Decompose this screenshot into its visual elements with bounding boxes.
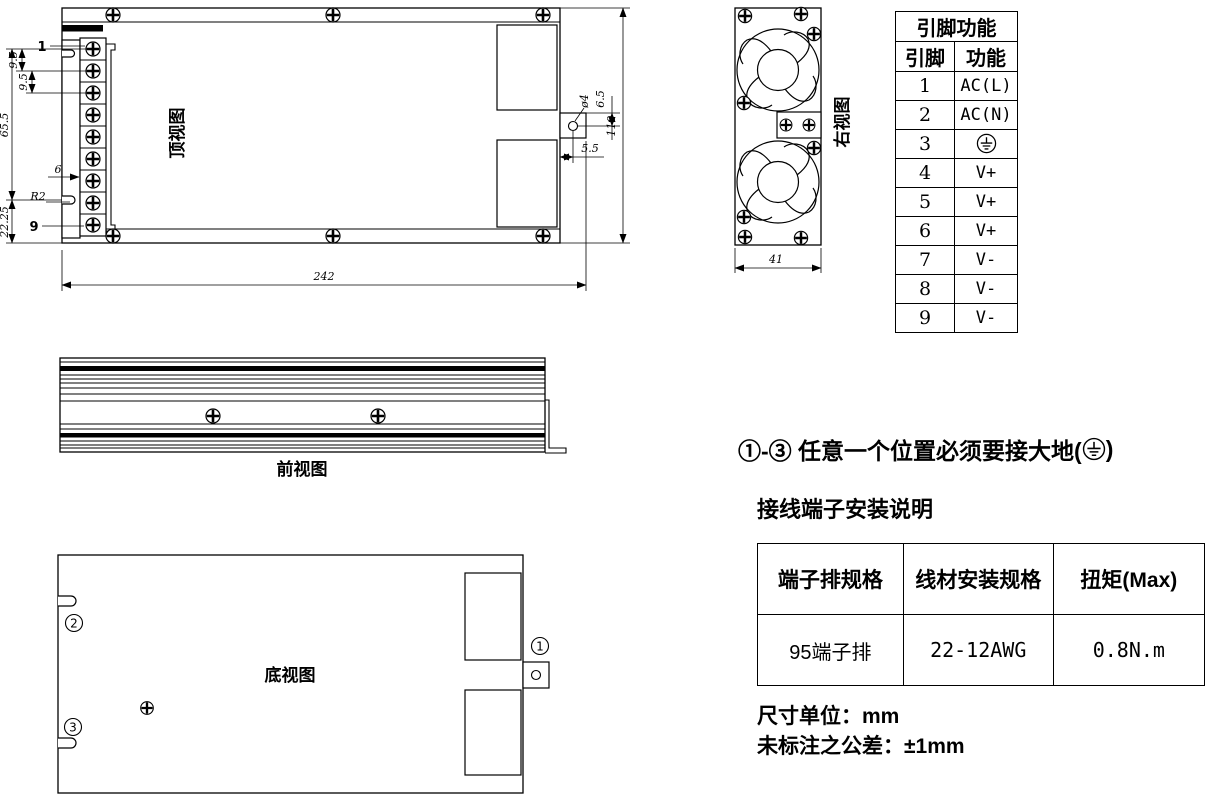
terminal-header-row: 端子排规格 线材安装规格 扭矩(Max) — [758, 544, 1205, 615]
tolerance-note: 未标注之公差：±1mm — [757, 732, 965, 762]
ground-note-suffix: ) — [1106, 436, 1114, 463]
marker-1: 1 — [536, 640, 544, 654]
pin-number: 9 — [896, 304, 955, 333]
earth-ground-icon — [976, 133, 997, 154]
pin-function: AC(N) — [955, 101, 1018, 130]
dim-hole-dia: ø4 — [578, 94, 591, 109]
front-view-body — [60, 358, 566, 453]
dim-length-242: 242 — [313, 270, 335, 283]
pin-last-label: 9 — [29, 220, 38, 235]
engineering-drawing-page: 1 9 9.5 9.5 65.5 22.25 6 R2 ø4 6.5 — [0, 0, 1205, 801]
front-screw — [206, 409, 220, 423]
pin-row: 6 V+ — [896, 217, 1018, 246]
right-view-drawing: 41 右视图 — [700, 0, 880, 290]
marker-2: 2 — [70, 617, 78, 631]
pin-function-table: 引脚功能 引脚 功能 1 AC(L) 2 AC(N) 3 4 V+ 5 V+ 6… — [895, 11, 1018, 333]
pin-row: 1 AC(L) — [896, 72, 1018, 101]
dim-pitch-a: 9.5 — [7, 51, 20, 69]
pin-function — [955, 130, 1018, 159]
top-view-label: 顶视图 — [167, 108, 187, 159]
pin-first-label: 1 — [37, 40, 46, 55]
pin-table-title: 引脚功能 — [896, 12, 1018, 42]
dim-corner-radius: R2 — [29, 190, 45, 203]
right-view-label: 右视图 — [832, 97, 852, 148]
pin-row: 4 V+ — [896, 159, 1018, 188]
function-column-header: 功能 — [955, 42, 1018, 72]
pin-row: 2 AC(N) — [896, 101, 1018, 130]
pin-number: 3 — [896, 130, 955, 159]
pin-function: V+ — [955, 217, 1018, 246]
units-note: 尺寸单位：mm — [757, 702, 965, 732]
dim-width-41: 41 — [768, 253, 783, 266]
dim-pitch-b: 9.5 — [17, 73, 30, 91]
fan-bottom-icon — [737, 141, 819, 223]
right-view-connector-box — [777, 112, 821, 138]
pin-function: V- — [955, 246, 1018, 275]
pin-row: 7 V- — [896, 246, 1018, 275]
pin-function: V- — [955, 275, 1018, 304]
front-screw — [371, 409, 385, 423]
wire-spec-value: 22-12AWG — [903, 615, 1053, 686]
ground-note-text: ①-③ 任意一个位置必须要接大地( — [738, 432, 1082, 466]
front-view-label: 前视图 — [277, 459, 328, 479]
pin-row: 8 V- — [896, 275, 1018, 304]
pin-row: 3 — [896, 130, 1018, 159]
pin-column-header: 引脚 — [896, 42, 955, 72]
torque-value: 0.8N.m — [1053, 615, 1204, 686]
dim-flange-width: 6 — [55, 163, 62, 176]
terminal-data-row: 95端子排 22-12AWG 0.8N.m — [758, 615, 1205, 686]
pin-function: V+ — [955, 188, 1018, 217]
dim-width-110: 110 — [605, 116, 618, 137]
bottom-view-tab — [523, 662, 549, 688]
pin-number: 2 — [896, 101, 955, 130]
front-view-drawing: 前视图 — [40, 350, 600, 490]
terminal-col-wire: 线材安装规格 — [903, 544, 1053, 615]
pin-function: V+ — [955, 159, 1018, 188]
front-view-bracket — [545, 400, 566, 453]
terminal-col-torque: 扭矩(Max) — [1053, 544, 1204, 615]
top-view-enclosure — [62, 8, 560, 243]
bottom-screw — [141, 702, 154, 715]
dim-hole-side-offset: 5.5 — [581, 142, 599, 155]
terminal-spec-table: 端子排规格 线材安装规格 扭矩(Max) 95端子排 22-12AWG 0.8N… — [757, 543, 1205, 686]
pin-row: 5 V+ — [896, 188, 1018, 217]
dim-bottom-offset: 22.25 — [0, 206, 11, 239]
marker-3: 3 — [69, 721, 77, 735]
pin-number: 8 — [896, 275, 955, 304]
dim-terminal-height: 65.5 — [0, 113, 11, 138]
bottom-view-label: 底视图 — [265, 665, 316, 685]
terminal-col-spec: 端子排规格 — [758, 544, 904, 615]
terminal-install-heading: 接线端子安装说明 — [757, 492, 933, 524]
ground-connection-note: ①-③ 任意一个位置必须要接大地( ) — [738, 432, 1113, 466]
pin-number: 1 — [896, 72, 955, 101]
terminal-block — [62, 38, 115, 238]
pin-function: AC(L) — [955, 72, 1018, 101]
pin-number: 5 — [896, 188, 955, 217]
pin-number: 6 — [896, 217, 955, 246]
pin-number: 7 — [896, 246, 955, 275]
right-view-dimension: 41 — [735, 248, 821, 273]
terminal-spec-value: 95端子排 — [758, 615, 904, 686]
bottom-view-drawing: 2 3 1 底视图 — [40, 545, 600, 801]
earth-ground-icon — [1082, 437, 1106, 461]
pin-number: 4 — [896, 159, 955, 188]
top-view-drawing: 1 9 9.5 9.5 65.5 22.25 6 R2 ø4 6.5 — [0, 0, 680, 300]
drawing-footnotes: 尺寸单位：mm 未标注之公差：±1mm — [757, 702, 965, 763]
dim-hole-top-offset: 6.5 — [594, 90, 607, 108]
pin-row: 9 V- — [896, 304, 1018, 333]
pin-function: V- — [955, 304, 1018, 333]
